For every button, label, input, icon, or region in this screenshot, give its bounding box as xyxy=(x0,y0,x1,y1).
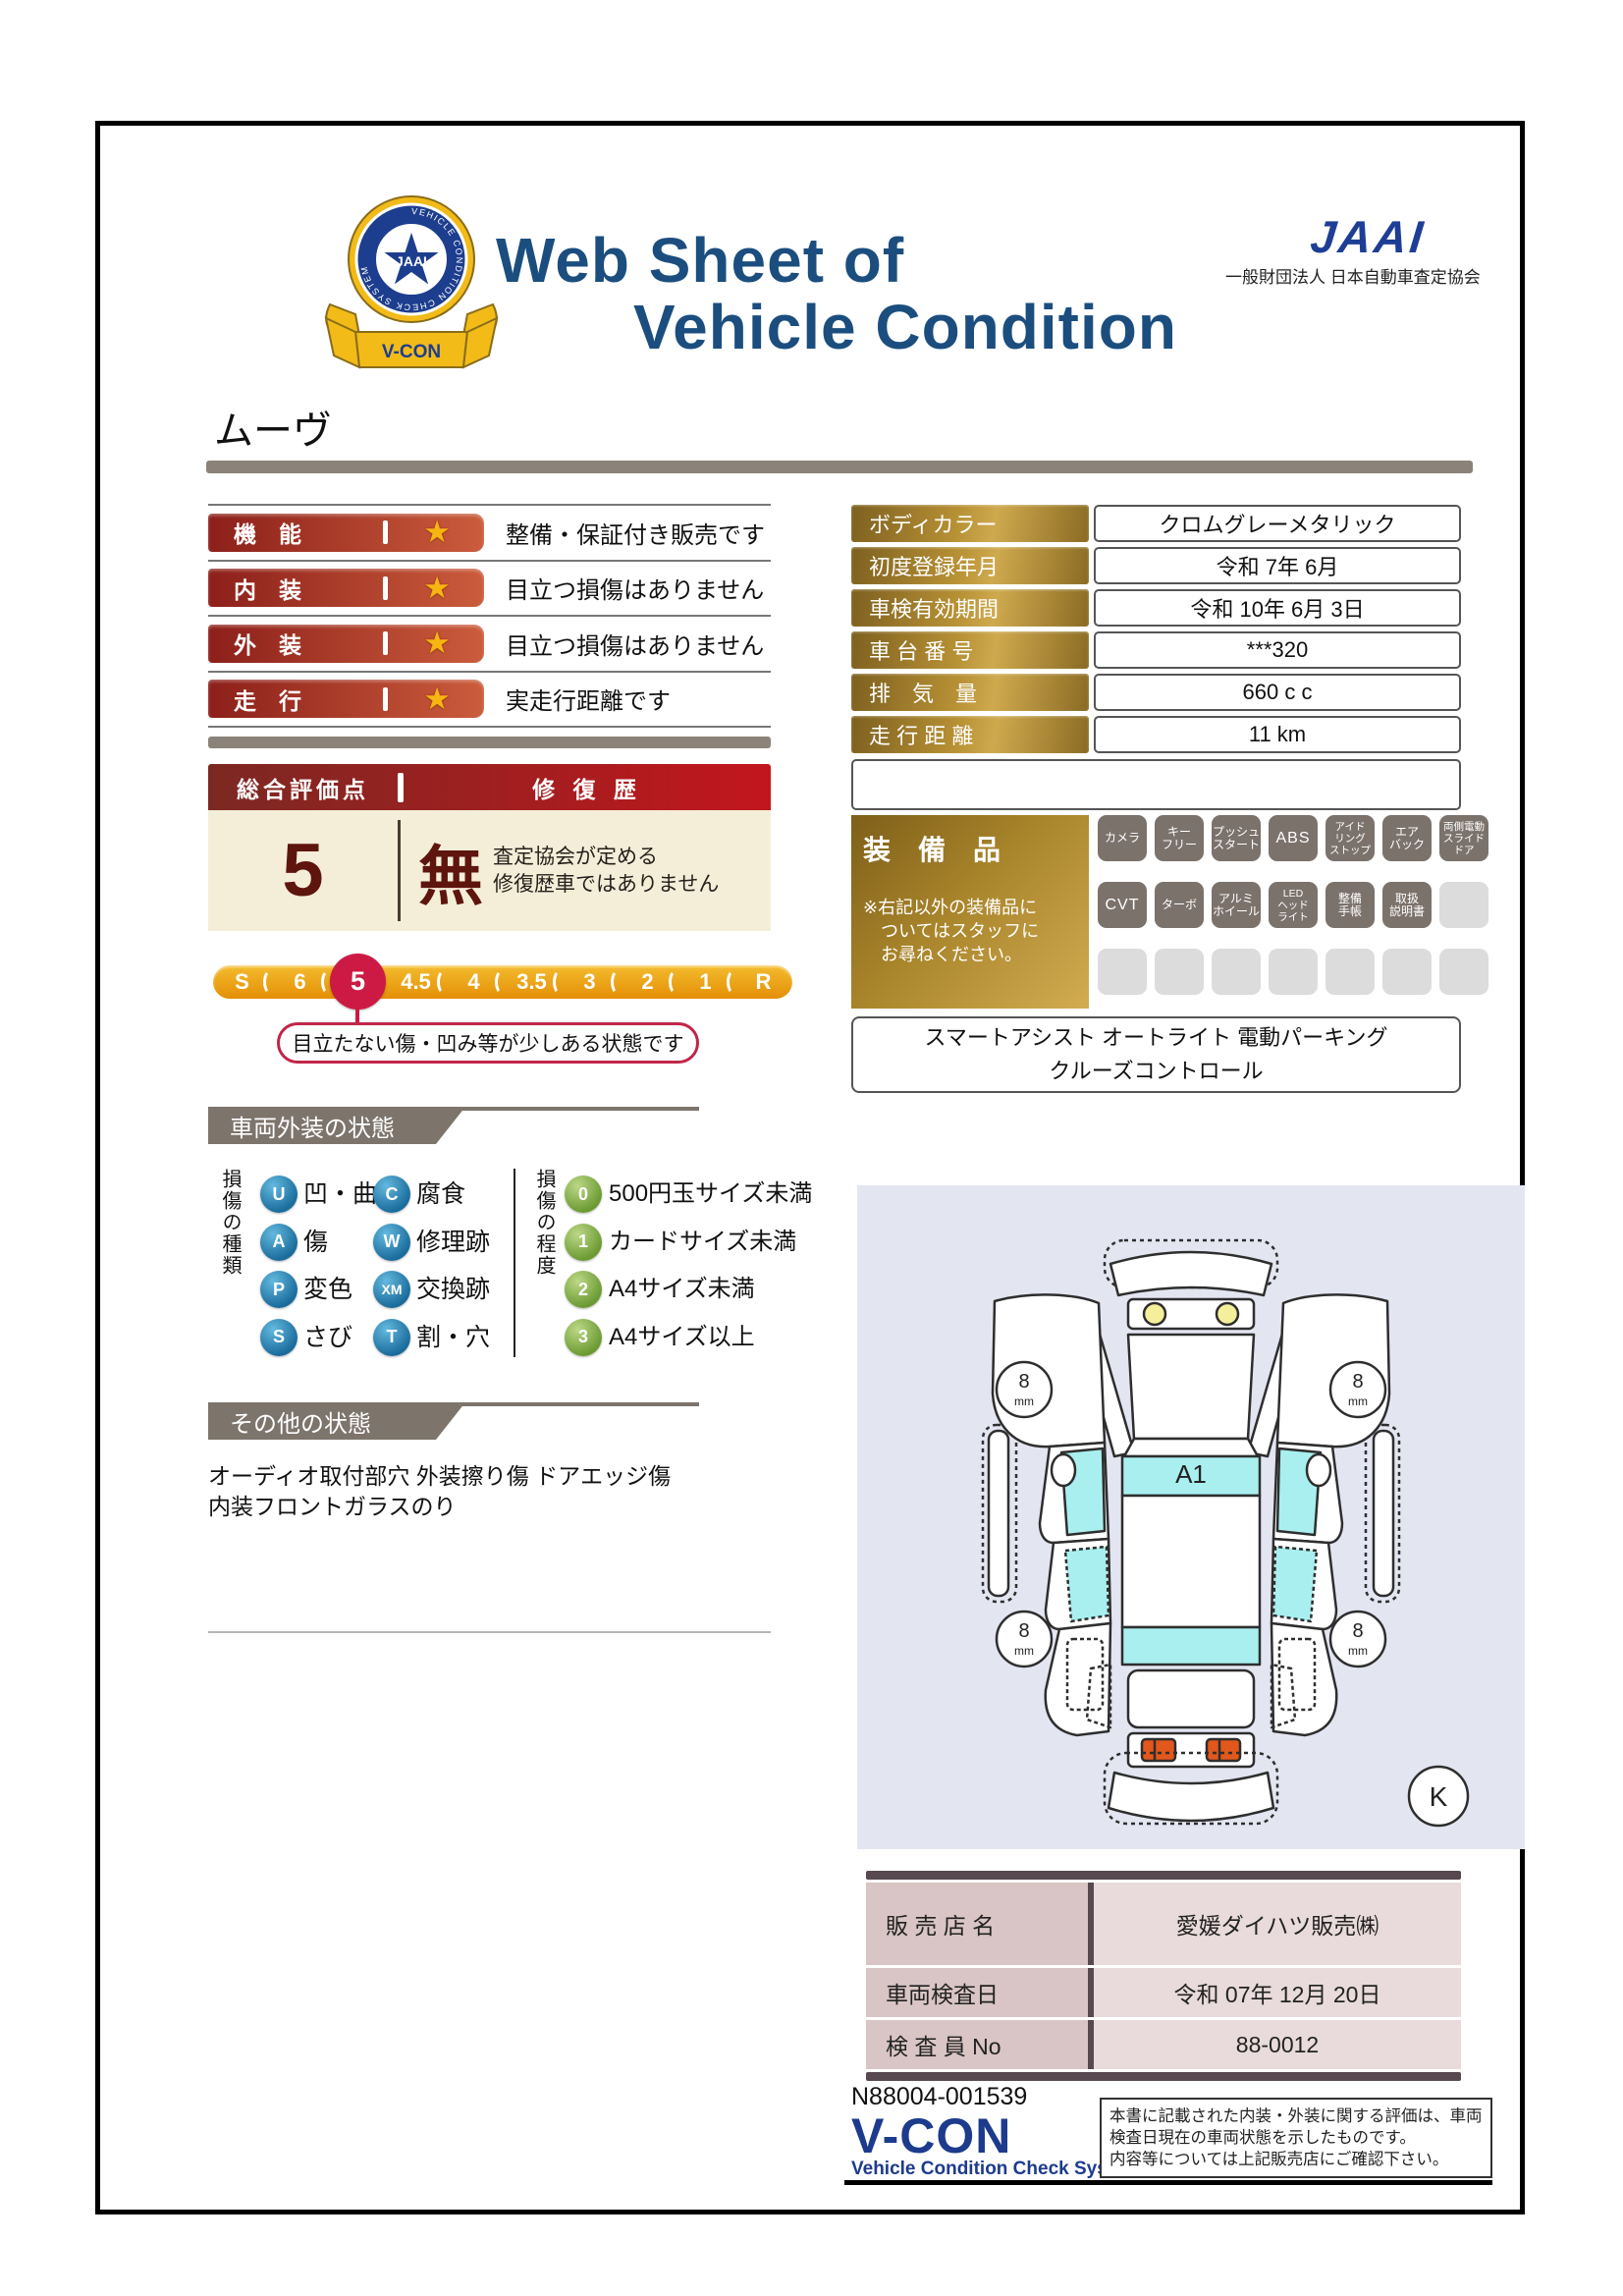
rating-row: 内 装★目立つ損傷はありません xyxy=(208,562,771,618)
emblem-ribbon-text: V-CON xyxy=(382,342,441,362)
equipment-badge: アイドリングストップ xyxy=(1325,815,1375,861)
jaai-organization-name: 一般財団法人 日本自動車査定協会 xyxy=(1225,263,1481,288)
damage-code-badge: 2 xyxy=(565,1271,602,1308)
dealer-table-row: 検 査 員 No88-0012 xyxy=(866,2020,1461,2069)
vehicle-condition-sheet: VEHICLE CONDITION CHECK SYSTEM ★ JAAI V-… xyxy=(0,0,1623,2296)
rating-bar: 機 能★ xyxy=(208,514,484,552)
other-condition-text: オーディオ取付部穴 外装擦り傷 ドアエッジ傷内装フロントガラスのり xyxy=(208,1461,671,1522)
star-icon: ★ xyxy=(423,682,451,717)
damage-kind-title: 損傷の種類 xyxy=(216,1169,244,1277)
svg-text:mm: mm xyxy=(1014,1394,1034,1408)
equipment-title: 装 備 品 xyxy=(863,829,1077,868)
equipment-badge: アルミホイール xyxy=(1212,882,1261,928)
rating-label: 機 能 xyxy=(234,516,301,549)
svg-text:8: 8 xyxy=(1352,1371,1363,1393)
notes-divider xyxy=(208,1631,771,1633)
overall-score-header: 総合評価点 修 復 歴 xyxy=(208,764,771,810)
info-row: 走 行 距 離11 km xyxy=(851,716,1461,753)
overall-score-title: 総合評価点 xyxy=(208,771,398,804)
svg-text:8: 8 xyxy=(1018,1371,1029,1393)
equipment-panel: 装 備 品 ※右記以外の装備品に ついてはスタッフに お尋ねください。 xyxy=(851,815,1089,1009)
svg-text:mm: mm xyxy=(1348,1394,1368,1408)
info-value: ***320 xyxy=(1094,631,1461,669)
damage-code-badge: A xyxy=(260,1224,298,1261)
equipment-badge xyxy=(1212,949,1261,995)
rating-row: 外 装★目立つ損傷はありません xyxy=(208,617,771,673)
info-label: 初度登録年月 xyxy=(851,547,1089,584)
svg-text:8: 8 xyxy=(1352,1620,1363,1642)
info-value: クロムグレーメタリック xyxy=(1094,505,1461,542)
damage-code-label: 変色 xyxy=(303,1271,352,1308)
info-value: 660 c c xyxy=(1094,674,1461,711)
equipment-badge xyxy=(1098,949,1147,995)
equipment-badge: キーフリー xyxy=(1155,815,1204,861)
equipment-badge xyxy=(1439,882,1488,928)
equipment-badge: 取扱説明書 xyxy=(1382,882,1432,928)
selected-score-marker: 5 xyxy=(330,954,386,1010)
vehicle-info-table: ボディカラークロムグレーメタリック初度登録年月令和 7年 6月車検有効期間令和 … xyxy=(851,505,1461,758)
overall-score-block: 総合評価点 修 復 歴 5 無 査定協会が定める 修復歴車ではありません xyxy=(208,764,771,931)
extra-equipment-box: スマートアシスト オートライト 電動パーキングクルーズコントロール xyxy=(851,1016,1461,1093)
footer-divider xyxy=(844,2180,1492,2185)
vcon-brand-subtitle: Vehicle Condition Check System xyxy=(851,2159,1141,2180)
rating-label: 外 装 xyxy=(234,627,301,660)
dealer-table-top-bar xyxy=(866,1871,1461,1880)
rating-separator xyxy=(383,631,388,655)
info-row: ボディカラークロムグレーメタリック xyxy=(851,505,1461,542)
info-row: 車 台 番 号***320 xyxy=(851,631,1461,669)
left-side-panels xyxy=(983,1294,1110,1735)
vehicle-name: ムーヴ xyxy=(214,399,332,456)
info-value: 令和 10年 6月 3日 xyxy=(1094,589,1461,627)
star-icon: ★ xyxy=(423,515,451,550)
rating-label: 走 行 xyxy=(234,683,301,716)
equipment-note: ※右記以外の装備品に ついてはスタッフに お尋ねください。 xyxy=(863,896,1077,966)
equipment-badge xyxy=(1382,949,1432,995)
segment-arc xyxy=(727,969,742,995)
headlight-right xyxy=(1217,1303,1238,1325)
damage-code-label: 凹・曲 xyxy=(303,1175,377,1213)
dealer-row-value: 令和 07年 12月 20日 xyxy=(1094,1968,1461,2017)
equipment-badge: 整備手帳 xyxy=(1325,882,1375,928)
roof-panel xyxy=(1122,1496,1260,1627)
damage-code-badge: 0 xyxy=(565,1175,602,1213)
damage-code-badge: W xyxy=(373,1224,410,1261)
segment-arc xyxy=(437,969,453,995)
segment-arc xyxy=(611,969,626,995)
rating-row: 機 能★整備・保証付き販売です xyxy=(208,506,771,562)
emblem-center-text: JAAI xyxy=(396,253,427,269)
hood-panel xyxy=(1128,1335,1254,1439)
section-divider xyxy=(208,737,771,748)
rating-separator xyxy=(383,576,388,600)
score-scale: S654.543.5321R xyxy=(213,965,792,999)
rear-bumper xyxy=(1109,1773,1273,1821)
svg-text:8: 8 xyxy=(1018,1620,1029,1642)
damage-code-label: A4サイズ未満 xyxy=(609,1271,755,1308)
rear-window-band xyxy=(1122,1627,1260,1665)
dealer-table: 販 売 店 名愛媛ダイハツ販売㈱車両検査日令和 07年 12月 20日検 査 員… xyxy=(866,1871,1461,2081)
document-frame: VEHICLE CONDITION CHECK SYSTEM ★ JAAI V-… xyxy=(95,121,1525,2214)
damage-code-label: A4サイズ以上 xyxy=(609,1319,755,1356)
info-label: 車検有効期間 xyxy=(851,589,1089,627)
rating-bar: 外 装★ xyxy=(208,625,484,663)
rating-comment: 目立つ損傷はありません xyxy=(506,571,764,605)
dealer-table-row: 車両検査日令和 07年 12月 20日 xyxy=(866,1968,1461,2017)
vcon-emblem-logo: VEHICLE CONDITION CHECK SYSTEM ★ JAAI V-… xyxy=(322,189,501,381)
dealer-table-bottom-bar xyxy=(866,2072,1461,2081)
equipment-badge: エアバック xyxy=(1382,815,1432,861)
rating-rows: 機 能★整備・保証付き販売です内 装★目立つ損傷はありません外 装★目立つ損傷は… xyxy=(208,504,771,728)
other-section-header: その他の状態 xyxy=(208,1402,465,1440)
car-damage-diagram: A1 8mm 8mm 8mm 8mm K xyxy=(857,1185,1525,1849)
damage-code-label: 腐食 xyxy=(416,1175,465,1213)
damage-code-badge: XM xyxy=(373,1271,410,1308)
equipment-badge: プッシュスタート xyxy=(1212,815,1261,861)
segment-arc xyxy=(263,969,279,995)
dealer-row-label: 販 売 店 名 xyxy=(866,1883,1088,1965)
segment-arc xyxy=(553,969,568,995)
svg-text:mm: mm xyxy=(1014,1644,1034,1658)
dealer-row-value: 愛媛ダイハツ販売㈱ xyxy=(1094,1883,1461,1965)
damage-code-badge: U xyxy=(260,1175,298,1213)
rating-comment: 整備・保証付き販売です xyxy=(506,516,765,550)
scale-segment: R xyxy=(734,969,792,995)
info-row: 初度登録年月令和 7年 6月 xyxy=(851,547,1461,584)
header-divider xyxy=(206,461,1473,473)
svg-text:mm: mm xyxy=(1348,1644,1368,1658)
equipment-badge: LEDヘッドライト xyxy=(1269,882,1318,928)
info-label: 排 気 量 xyxy=(851,674,1089,711)
damage-code-label: 修理跡 xyxy=(416,1224,490,1261)
front-bumper xyxy=(1110,1252,1271,1295)
damage-code-label: 交換跡 xyxy=(416,1271,490,1308)
damage-code-label: 割・穴 xyxy=(416,1319,490,1356)
equipment-badge-grid: カメラキーフリープッシュスタートABSアイドリングストップエアバック両側電動スラ… xyxy=(1098,815,1490,1015)
info-label: 走 行 距 離 xyxy=(851,716,1089,753)
damage-code-badge: P xyxy=(260,1271,298,1308)
right-side-panels xyxy=(1271,1294,1399,1735)
trunk-panel xyxy=(1128,1670,1254,1727)
windshield-edge xyxy=(1124,1439,1258,1456)
taillight-right xyxy=(1207,1739,1240,1761)
info-label: ボディカラー xyxy=(851,505,1089,542)
exterior-section-header: 車両外装の状態 xyxy=(208,1107,465,1144)
taillight-left xyxy=(1142,1739,1175,1761)
rating-row: 走 行★実走行距離です xyxy=(208,673,771,729)
info-row: 排 気 量660 c c xyxy=(851,674,1461,711)
dealer-row-label: 検 査 員 No xyxy=(866,2020,1088,2069)
score-callout: 目立たない傷・凹み等が少しある状態です xyxy=(277,1022,699,1064)
info-row: 車検有効期間令和 10年 6月 3日 xyxy=(851,589,1461,627)
damage-code-badge: 3 xyxy=(565,1319,602,1356)
rating-label: 内 装 xyxy=(234,572,301,605)
damage-code-label: カードサイズ未満 xyxy=(609,1224,796,1261)
repair-history-value: 無 xyxy=(418,824,483,918)
equipment-badge: CVT xyxy=(1098,882,1147,928)
disclaimer-box: 本書に記載された内装・外装に関する評価は、車両検査日現在の車両状態を示したもので… xyxy=(1100,2098,1492,2178)
overall-score-body: 5 無 査定協会が定める 修復歴車ではありません xyxy=(208,810,771,931)
star-icon: ★ xyxy=(423,571,451,606)
equipment-badge: 両側電動スライドドア xyxy=(1439,815,1488,861)
headlight-left xyxy=(1144,1303,1165,1325)
repair-history-note: 査定協会が定める 修復歴車ではありません xyxy=(493,844,719,899)
info-value: 11 km xyxy=(1094,716,1461,753)
vcon-brand: V-CON xyxy=(851,2107,1011,2164)
legend-divider xyxy=(514,1169,515,1357)
damage-marker-a1: A1 xyxy=(1175,1459,1207,1489)
equipment-badge: ターボ xyxy=(1155,882,1204,928)
corner-mark: K xyxy=(1430,1781,1448,1812)
rating-bar: 走 行★ xyxy=(208,680,484,718)
damage-code-badge: T xyxy=(373,1319,410,1356)
info-value: 令和 7年 6月 xyxy=(1094,547,1461,584)
rating-separator xyxy=(383,520,388,544)
damage-code-badge: 1 xyxy=(565,1224,602,1261)
empty-info-box xyxy=(851,759,1461,810)
damage-code-label: 500円玉サイズ未満 xyxy=(609,1175,812,1213)
equipment-badge xyxy=(1439,949,1488,995)
jaai-logo: JAAI xyxy=(1308,210,1428,263)
equipment-badge xyxy=(1269,949,1318,995)
equipment-badge xyxy=(1155,949,1204,995)
info-label: 車 台 番 号 xyxy=(851,631,1089,669)
dealer-row-value: 88-0012 xyxy=(1094,2020,1461,2069)
repair-history-title: 修 復 歴 xyxy=(404,771,771,804)
rating-separator xyxy=(383,687,388,711)
equipment-badge: カメラ xyxy=(1098,815,1147,861)
segment-arc xyxy=(669,969,684,995)
equipment-badge: ABS xyxy=(1269,815,1318,861)
segment-arc xyxy=(495,969,511,995)
damage-code-label: 傷 xyxy=(303,1224,328,1261)
star-icon: ★ xyxy=(423,626,451,661)
damage-code-label: さび xyxy=(303,1319,352,1356)
rating-comment: 実走行距離です xyxy=(506,682,671,716)
dealer-table-row: 販 売 店 名愛媛ダイハツ販売㈱ xyxy=(866,1883,1461,1965)
page-title-line1: Web Sheet of xyxy=(496,224,904,297)
damage-code-badge: S xyxy=(260,1319,298,1356)
dealer-row-label: 車両検査日 xyxy=(866,1968,1088,2017)
page-title-line2: Vehicle Condition xyxy=(633,291,1177,363)
damage-code-badge: C xyxy=(373,1175,410,1213)
damage-degree-title: 損傷の程度 xyxy=(530,1169,559,1277)
equipment-badge xyxy=(1325,949,1375,995)
rating-comment: 目立つ損傷はありません xyxy=(506,627,764,661)
overall-score-value: 5 xyxy=(208,810,398,931)
rating-bar: 内 装★ xyxy=(208,569,484,607)
